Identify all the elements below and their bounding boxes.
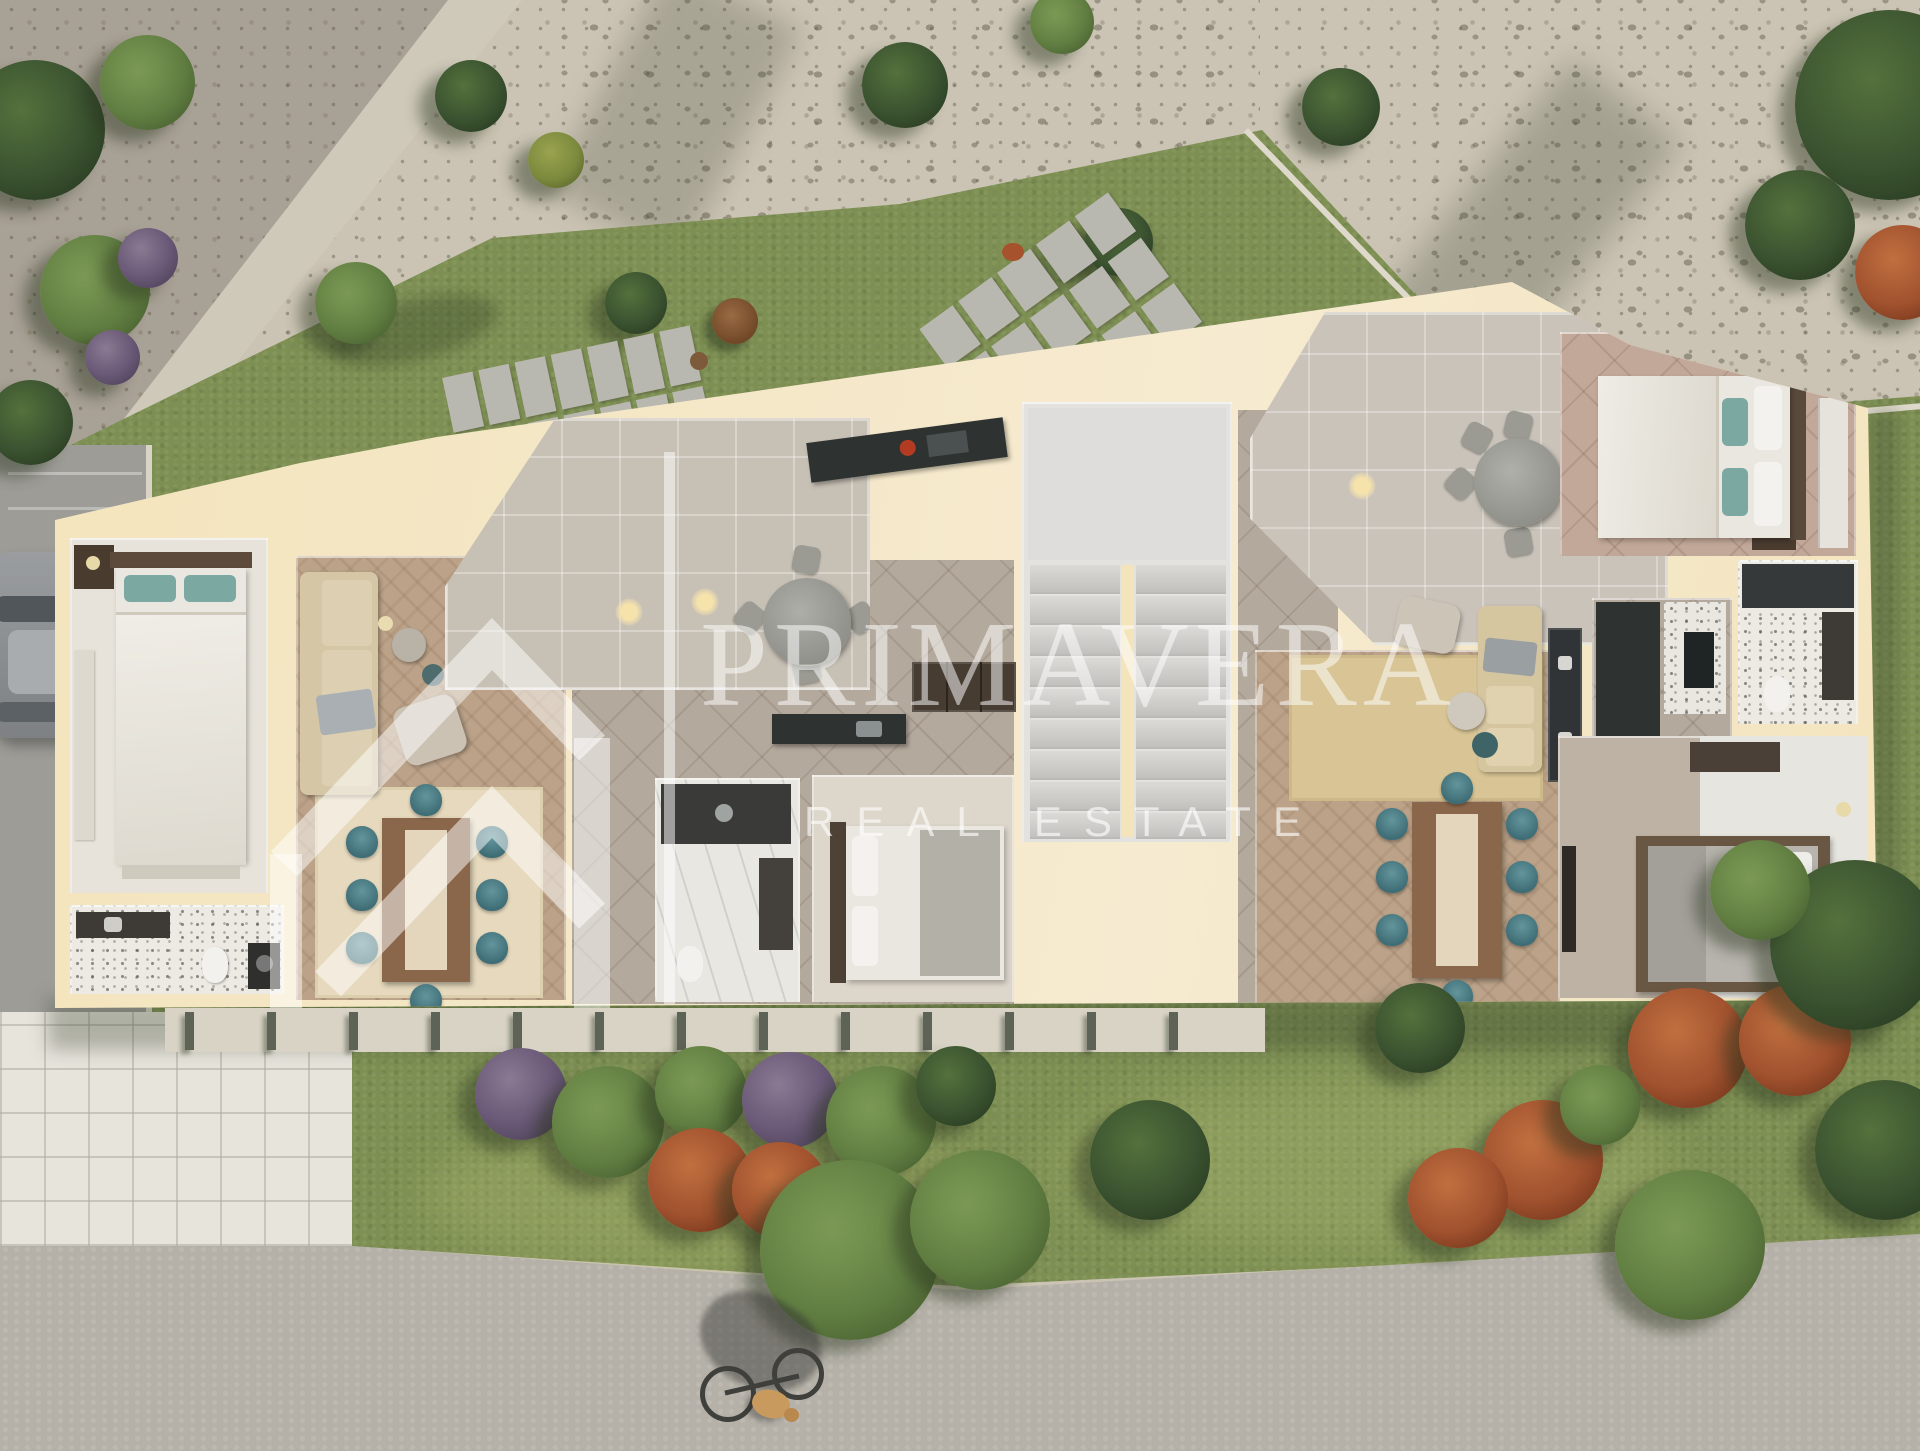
tree xyxy=(1302,68,1380,146)
coffee-table xyxy=(392,628,426,662)
garden-object xyxy=(1002,243,1024,261)
lamp xyxy=(86,556,100,570)
toilet xyxy=(677,946,703,982)
stair-tread xyxy=(1030,658,1120,687)
stair-tread xyxy=(1136,813,1226,839)
coffee-table xyxy=(1447,692,1485,730)
wardrobe-door-line xyxy=(980,662,982,712)
dining-chair xyxy=(1376,861,1408,893)
dining-chair xyxy=(1506,861,1538,893)
bedroom-1 xyxy=(70,538,268,893)
bush xyxy=(528,132,584,188)
stair-tread xyxy=(1030,813,1120,839)
wardrobe-door-line xyxy=(946,662,948,712)
dining-chair xyxy=(1376,808,1408,840)
patio-table-2 xyxy=(1474,438,1562,526)
flower-bush xyxy=(742,1052,838,1148)
floor-lamp xyxy=(378,616,393,631)
fence-post xyxy=(1087,1012,1096,1050)
bush xyxy=(315,262,397,344)
throw-blanket xyxy=(1648,846,1706,982)
tree xyxy=(862,42,948,128)
shelf-item xyxy=(1558,656,1572,670)
flower-bush xyxy=(118,228,178,288)
pillow xyxy=(1754,386,1782,450)
bed xyxy=(846,826,1004,980)
dining-chair xyxy=(1376,914,1408,946)
lamp xyxy=(1836,802,1851,817)
ceiling-light xyxy=(615,598,643,626)
patio-chair xyxy=(1502,409,1535,442)
armchair-1 xyxy=(390,692,469,769)
pillow xyxy=(124,575,176,602)
pillow xyxy=(184,575,236,602)
stair-tread xyxy=(1136,596,1226,625)
dining-chair xyxy=(346,879,378,911)
dresser xyxy=(1690,742,1780,772)
fence-post xyxy=(759,1012,768,1050)
kitchen-island-1 xyxy=(772,714,906,744)
stair-landing xyxy=(1028,408,1226,560)
throw-blanket xyxy=(315,688,376,735)
bush xyxy=(916,1046,996,1126)
paver-tile xyxy=(478,364,520,425)
bed-bench xyxy=(122,866,240,879)
washer-door xyxy=(256,955,273,972)
stair-tread xyxy=(1136,751,1226,780)
stair-tread xyxy=(1136,627,1226,656)
side-table xyxy=(1472,732,1498,758)
stair-flight xyxy=(1136,565,1226,837)
bush xyxy=(1090,1100,1210,1220)
wardrobe xyxy=(1818,398,1848,548)
bathroom-vanity xyxy=(76,912,170,938)
side-table xyxy=(422,664,444,686)
sofa-1 xyxy=(300,572,378,795)
tree xyxy=(100,35,195,130)
bush xyxy=(435,60,507,132)
sink xyxy=(856,721,882,737)
oven xyxy=(1684,632,1714,688)
bush xyxy=(1375,983,1465,1073)
fence-post xyxy=(185,1012,194,1050)
dining-table-2 xyxy=(1412,802,1502,978)
patio-table-1 xyxy=(763,578,851,666)
autumn-bush xyxy=(1408,1148,1508,1248)
fence-post xyxy=(677,1012,686,1050)
stair-tread xyxy=(1030,751,1120,780)
terrace-1 xyxy=(445,418,870,690)
red-pot xyxy=(899,439,917,457)
duvet xyxy=(1598,376,1719,538)
paver-tile xyxy=(551,348,593,409)
dining-chair xyxy=(346,826,378,858)
dining-chair xyxy=(1441,772,1473,804)
fence-post xyxy=(513,1012,522,1050)
dresser xyxy=(74,650,94,840)
bedroom-2 xyxy=(812,775,1014,1002)
kitchen-cabinets xyxy=(1596,602,1660,746)
bush xyxy=(1710,840,1810,940)
fence-post xyxy=(431,1012,440,1050)
bed-headboard xyxy=(830,822,846,983)
table-runner xyxy=(405,830,447,970)
dining-chair xyxy=(1506,914,1538,946)
ceiling-light xyxy=(691,588,719,616)
stair-divider xyxy=(1122,565,1134,837)
duvet xyxy=(920,830,1000,976)
fence-post xyxy=(349,1012,358,1050)
sink xyxy=(104,917,122,932)
stair-tread xyxy=(1136,689,1226,718)
fence-post xyxy=(595,1012,604,1050)
autumn-bush xyxy=(1628,988,1748,1108)
stair-tread xyxy=(1030,596,1120,625)
tree xyxy=(1745,170,1855,280)
paver-tile xyxy=(623,333,665,394)
living-room-2 xyxy=(1255,650,1560,1004)
fence-post xyxy=(841,1012,850,1050)
pillow xyxy=(852,836,878,896)
shower xyxy=(1742,564,1854,608)
bathroom-3 xyxy=(1738,560,1858,724)
sofa-cushion xyxy=(1486,686,1534,724)
wardrobe xyxy=(912,662,1016,712)
dining-chair xyxy=(476,879,508,911)
stair-tread xyxy=(1030,720,1120,749)
pillow xyxy=(852,906,878,966)
toilet xyxy=(202,947,228,983)
garden-stool xyxy=(690,352,708,370)
bush xyxy=(910,1150,1050,1290)
tv-panel xyxy=(1562,846,1576,952)
patio-chair xyxy=(791,544,822,575)
stair-tread xyxy=(1030,565,1120,594)
bed-headboard xyxy=(1790,374,1806,540)
duvet xyxy=(116,612,246,865)
paver-tile xyxy=(514,356,556,417)
ceiling-light xyxy=(1348,472,1376,500)
sofa-cushion xyxy=(322,580,372,646)
bush xyxy=(605,272,667,334)
dining-chair xyxy=(1506,808,1538,840)
stair-tread xyxy=(1030,627,1120,656)
stair-tread xyxy=(1136,658,1226,687)
bathroom-vanity xyxy=(759,858,793,950)
pillow xyxy=(1722,398,1748,446)
floor-plan-render: PRIMAVERA REAL ESTATE xyxy=(0,0,1920,1451)
driveway-line xyxy=(8,472,142,475)
toilet xyxy=(1764,676,1790,712)
fence-post xyxy=(267,1012,276,1050)
fence-post xyxy=(1005,1012,1014,1050)
stairwell xyxy=(1022,402,1232,842)
pillow xyxy=(1754,462,1782,526)
fence-post xyxy=(1169,1012,1178,1050)
dog-head xyxy=(784,1408,799,1422)
bathroom-1 xyxy=(70,905,284,994)
bush xyxy=(552,1066,664,1178)
table-runner xyxy=(1436,814,1478,966)
bush xyxy=(1560,1065,1640,1145)
fence-base xyxy=(165,1008,1265,1052)
throw-blanket xyxy=(1482,637,1537,676)
cooktop xyxy=(926,430,969,457)
stair-tread xyxy=(1030,782,1120,811)
stair-flight xyxy=(1030,565,1120,837)
patio-chair xyxy=(1503,526,1534,557)
bathroom-vanity xyxy=(1822,612,1854,700)
shower-head xyxy=(715,804,733,822)
dining-chair xyxy=(410,784,442,816)
stair-tread xyxy=(1136,565,1226,594)
bed-headboard xyxy=(110,552,252,568)
dining-table-1 xyxy=(382,818,470,982)
fence-post xyxy=(923,1012,932,1050)
stair-tread xyxy=(1136,782,1226,811)
stair-tread xyxy=(1030,689,1120,718)
pillow xyxy=(1722,468,1748,516)
bathroom-2 xyxy=(655,778,800,1002)
bush xyxy=(655,1046,747,1138)
dining-chair xyxy=(476,826,508,858)
dining-chair xyxy=(346,932,378,964)
stair-tread xyxy=(1136,720,1226,749)
bed xyxy=(116,568,246,862)
garden-table xyxy=(712,298,758,344)
bed xyxy=(1598,376,1790,538)
flower-bush xyxy=(85,330,140,385)
paver-tile xyxy=(587,341,629,402)
tree xyxy=(1615,1170,1765,1320)
dining-chair xyxy=(476,932,508,964)
